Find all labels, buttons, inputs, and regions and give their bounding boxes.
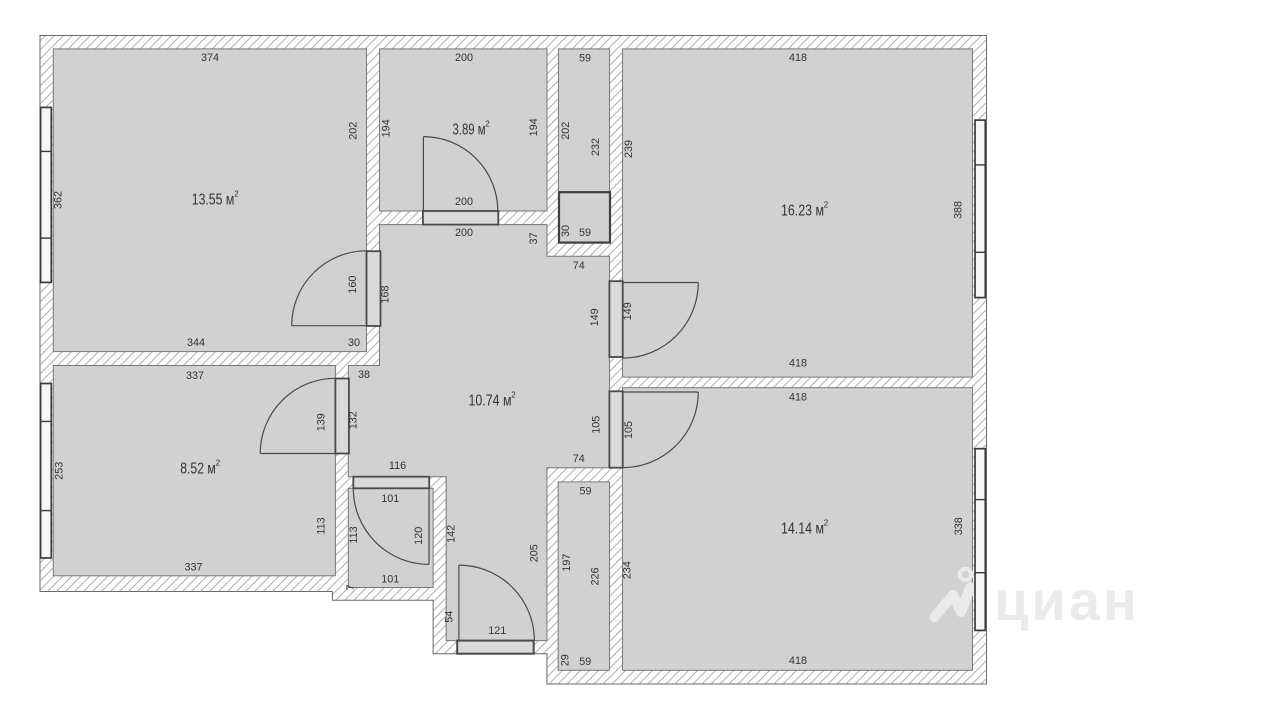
svg-text:37: 37 — [528, 232, 540, 244]
svg-text:226: 226 — [590, 567, 602, 585]
svg-text:202: 202 — [560, 122, 572, 140]
svg-text:10.74 м: 10.74 м — [469, 393, 512, 410]
svg-text:105: 105 — [591, 416, 603, 434]
svg-text:74: 74 — [573, 453, 585, 465]
svg-text:54: 54 — [444, 611, 456, 623]
svg-text:74: 74 — [573, 260, 585, 272]
svg-text:120: 120 — [413, 527, 425, 545]
svg-text:7: 7 — [345, 584, 357, 590]
svg-text:59: 59 — [579, 656, 591, 668]
svg-text:418: 418 — [789, 392, 807, 404]
svg-text:200: 200 — [455, 52, 473, 64]
svg-text:160: 160 — [347, 276, 359, 294]
svg-text:2: 2 — [485, 120, 490, 129]
svg-text:13.55 м: 13.55 м — [192, 191, 235, 208]
svg-text:142: 142 — [446, 525, 458, 543]
svg-text:337: 337 — [184, 562, 202, 574]
svg-text:113: 113 — [348, 526, 360, 543]
svg-text:338: 338 — [953, 517, 965, 535]
svg-text:113: 113 — [316, 517, 328, 534]
svg-text:234: 234 — [622, 561, 634, 579]
svg-text:388: 388 — [953, 201, 965, 219]
svg-text:59: 59 — [579, 227, 591, 239]
svg-text:121: 121 — [488, 625, 506, 637]
svg-text:59: 59 — [579, 486, 591, 498]
svg-text:239: 239 — [623, 140, 635, 158]
svg-text:374: 374 — [201, 52, 219, 64]
svg-text:116: 116 — [389, 460, 406, 472]
svg-text:38: 38 — [358, 369, 370, 381]
svg-text:30: 30 — [348, 337, 360, 349]
svg-text:418: 418 — [789, 358, 807, 370]
svg-text:2: 2 — [511, 391, 516, 400]
svg-text:344: 344 — [187, 337, 205, 349]
svg-text:202: 202 — [347, 122, 359, 140]
svg-text:149: 149 — [589, 308, 601, 326]
svg-text:362: 362 — [53, 191, 65, 209]
svg-text:200: 200 — [455, 196, 473, 208]
svg-text:132: 132 — [348, 411, 360, 429]
svg-text:2: 2 — [824, 519, 829, 528]
svg-text:149: 149 — [622, 302, 634, 320]
svg-text:205: 205 — [529, 544, 541, 562]
svg-text:3.89 м: 3.89 м — [453, 122, 486, 139]
svg-text:101: 101 — [381, 574, 399, 586]
svg-text:16.23 м: 16.23 м — [781, 203, 824, 220]
svg-text:194: 194 — [380, 119, 392, 137]
svg-text:337: 337 — [186, 370, 204, 382]
svg-text:194: 194 — [528, 118, 540, 136]
svg-text:168: 168 — [379, 285, 391, 303]
svg-text:418: 418 — [789, 655, 807, 667]
svg-text:253: 253 — [54, 462, 66, 480]
svg-text:101: 101 — [381, 493, 399, 505]
svg-text:105: 105 — [623, 421, 635, 439]
svg-text:59: 59 — [579, 53, 591, 65]
svg-text:418: 418 — [789, 52, 807, 64]
svg-text:2: 2 — [824, 201, 829, 210]
svg-text:14.14 м: 14.14 м — [781, 521, 824, 538]
svg-text:232: 232 — [590, 138, 602, 156]
svg-text:200: 200 — [455, 227, 473, 239]
svg-text:2: 2 — [216, 459, 221, 468]
svg-text:29: 29 — [560, 654, 572, 666]
svg-text:циан: циан — [994, 569, 1140, 632]
svg-text:8.52 м: 8.52 м — [180, 461, 216, 478]
svg-text:197: 197 — [561, 554, 573, 572]
svg-text:30: 30 — [560, 225, 572, 237]
svg-text:2: 2 — [234, 189, 239, 198]
svg-text:139: 139 — [315, 413, 327, 431]
